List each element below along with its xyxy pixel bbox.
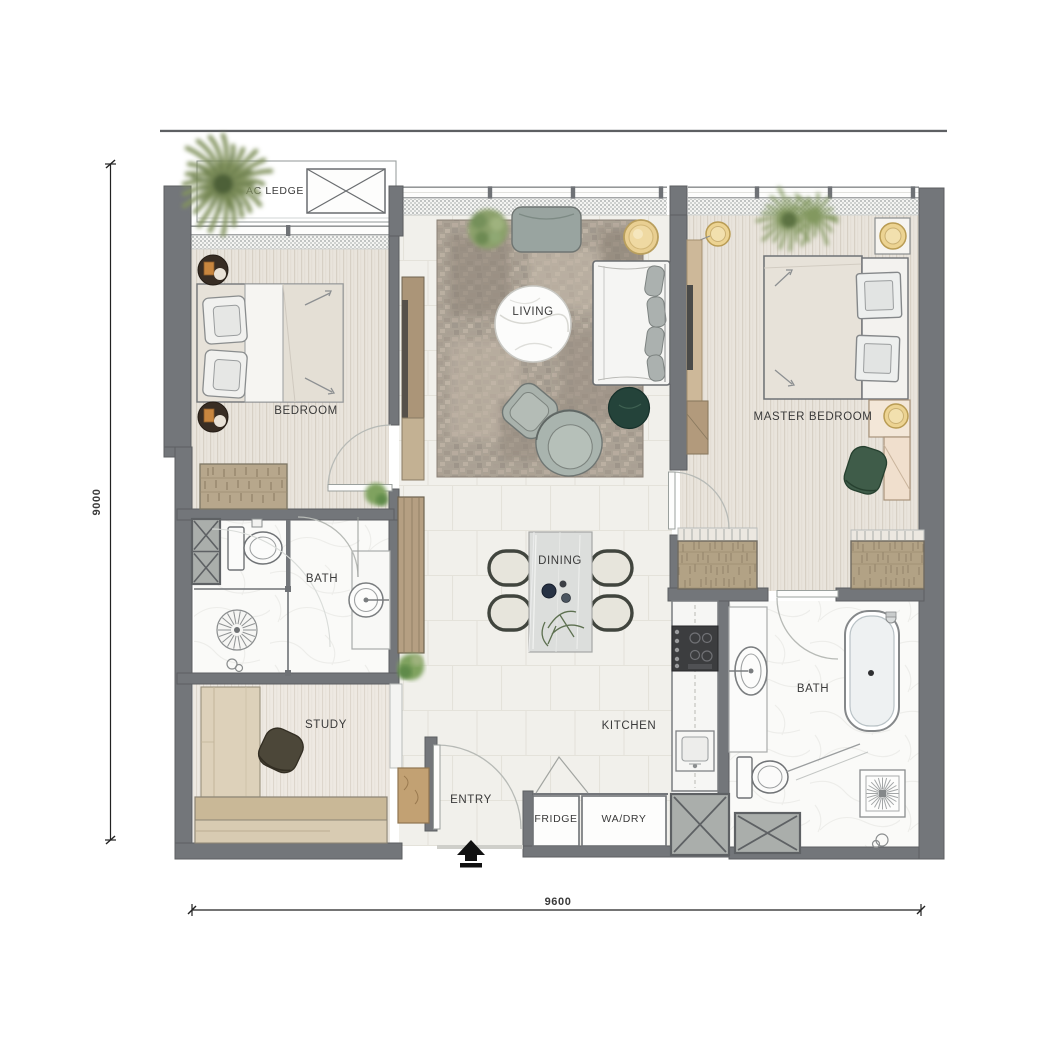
svg-text:FRIDGE: FRIDGE xyxy=(534,813,577,825)
svg-text:BATH: BATH xyxy=(306,573,338,585)
svg-text:KITCHEN: KITCHEN xyxy=(602,720,657,732)
svg-text:BEDROOM: BEDROOM xyxy=(274,405,338,417)
svg-text:9000: 9000 xyxy=(91,489,103,516)
svg-text:LIVING: LIVING xyxy=(512,306,553,318)
svg-text:STUDY: STUDY xyxy=(305,719,347,731)
svg-text:WA/DRY: WA/DRY xyxy=(601,813,646,825)
svg-text:DINING: DINING xyxy=(538,555,582,567)
svg-text:BATH: BATH xyxy=(797,683,829,695)
svg-text:ENTRY: ENTRY xyxy=(450,794,492,806)
svg-text:9600: 9600 xyxy=(545,896,572,908)
svg-text:MASTER BEDROOM: MASTER BEDROOM xyxy=(754,411,873,423)
